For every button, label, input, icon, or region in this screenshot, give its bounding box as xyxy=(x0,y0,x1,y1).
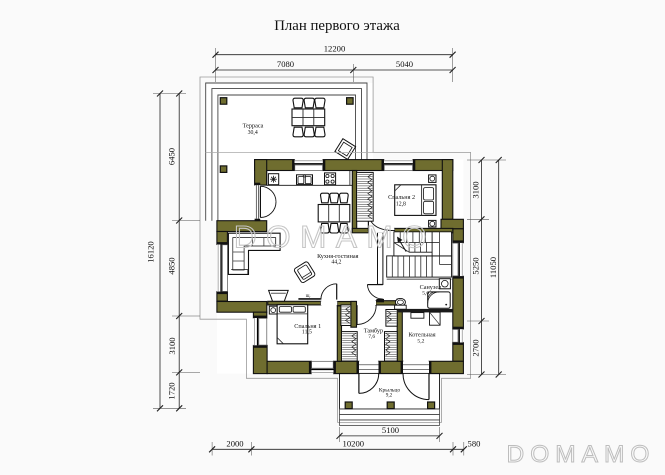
svg-text:3100: 3100 xyxy=(167,337,177,354)
svg-text:2000: 2000 xyxy=(226,439,243,449)
svg-text:1720: 1720 xyxy=(167,382,177,399)
svg-text:DOMAMO: DOMAMO xyxy=(507,441,656,468)
svg-text:30,4: 30,4 xyxy=(248,130,258,136)
svg-text:5100: 5100 xyxy=(382,425,399,435)
svg-text:DOMAMO: DOMAMO xyxy=(234,218,436,254)
svg-text:4850: 4850 xyxy=(166,257,176,274)
svg-text:5250: 5250 xyxy=(471,257,481,274)
svg-text:Терраса: Терраса xyxy=(243,123,264,130)
svg-text:6450: 6450 xyxy=(166,148,176,165)
svg-text:3100: 3100 xyxy=(471,181,481,198)
svg-text:11050: 11050 xyxy=(488,257,498,278)
svg-text:9,2: 9,2 xyxy=(386,393,393,399)
svg-text:12200: 12200 xyxy=(324,44,345,54)
svg-text:580: 580 xyxy=(468,439,481,449)
svg-text:11,5: 11,5 xyxy=(302,330,312,336)
svg-text:12,8: 12,8 xyxy=(396,201,406,207)
svg-text:щ.: щ. xyxy=(306,294,311,299)
svg-text:План первого этажа: План первого этажа xyxy=(274,18,400,34)
svg-text:44,2: 44,2 xyxy=(331,259,341,265)
svg-text:7,6: 7,6 xyxy=(368,334,375,340)
svg-text:5040: 5040 xyxy=(396,59,413,69)
svg-text:7080: 7080 xyxy=(277,59,294,69)
svg-text:5,6: 5,6 xyxy=(422,291,429,297)
svg-text:10200: 10200 xyxy=(343,439,364,449)
svg-text:16120: 16120 xyxy=(145,241,155,262)
svg-text:2700: 2700 xyxy=(471,339,481,356)
svg-text:Спальня 2: Спальня 2 xyxy=(388,194,415,201)
svg-text:5,2: 5,2 xyxy=(417,338,424,344)
